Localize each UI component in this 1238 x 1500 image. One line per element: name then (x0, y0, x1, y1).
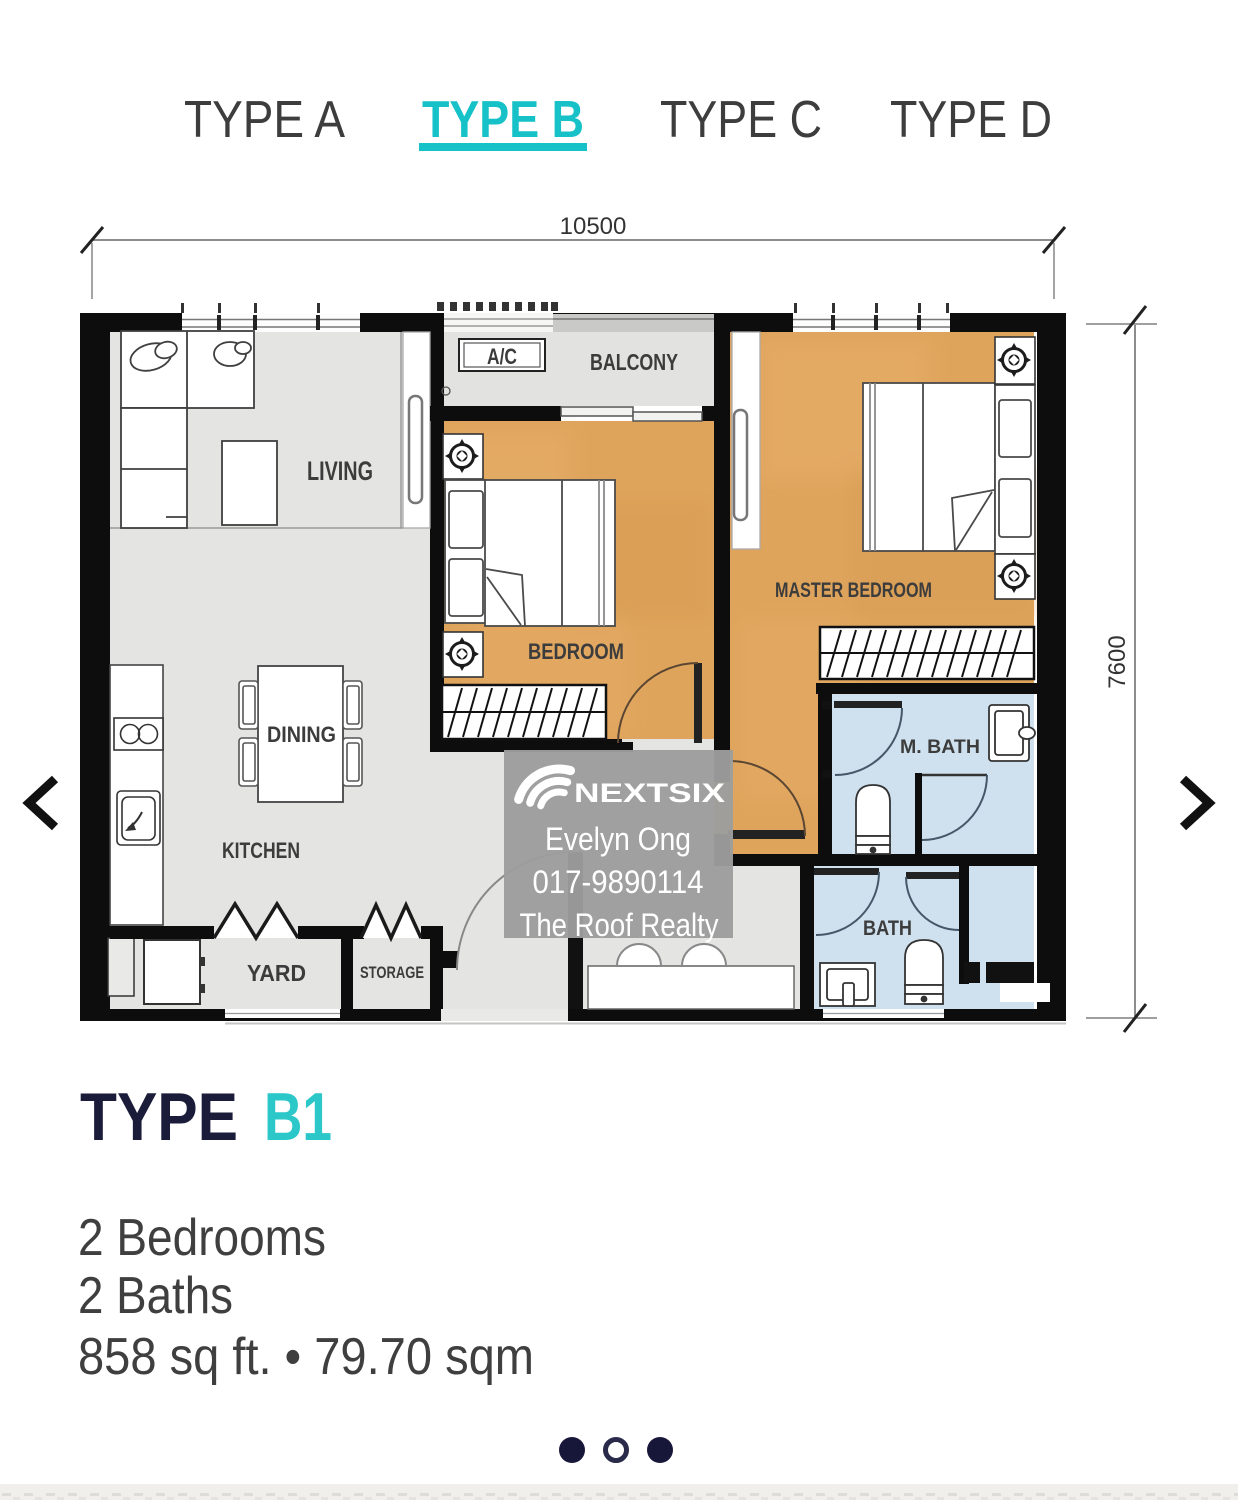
svg-text:LIVING: LIVING (307, 456, 373, 486)
svg-text:TYPE B: TYPE B (422, 91, 584, 149)
svg-text:KITCHEN: KITCHEN (222, 838, 300, 863)
svg-text:B1: B1 (264, 1079, 332, 1155)
svg-text:TYPE D: TYPE D (890, 91, 1052, 149)
svg-text:M. BATH: M. BATH (900, 737, 980, 758)
svg-text:TYPE A: TYPE A (184, 91, 345, 149)
svg-text:MASTER BEDROOM: MASTER BEDROOM (775, 579, 932, 602)
svg-text:Evelyn Ong: Evelyn Ong (545, 821, 691, 857)
svg-text:BATH: BATH (863, 917, 912, 940)
svg-text:DINING: DINING (267, 722, 336, 747)
svg-text:STORAGE: STORAGE (360, 963, 424, 982)
svg-text:858 sq ft. • 79.70 sqm: 858 sq ft. • 79.70 sqm (78, 1328, 534, 1386)
svg-text:017-9890114: 017-9890114 (533, 864, 704, 900)
svg-text:The Roof Realty: The Roof Realty (520, 907, 719, 943)
svg-text:A/C: A/C (487, 344, 517, 369)
svg-text:BEDROOM: BEDROOM (528, 639, 624, 664)
svg-text:10500: 10500 (560, 213, 627, 240)
svg-text:YARD: YARD (247, 960, 306, 986)
svg-text:7600: 7600 (1104, 635, 1131, 688)
svg-text:TYPE C: TYPE C (660, 91, 822, 149)
svg-text:2 Baths: 2 Baths (78, 1267, 233, 1325)
svg-text:2 Bedrooms: 2 Bedrooms (78, 1209, 326, 1267)
svg-text:BALCONY: BALCONY (590, 349, 678, 375)
svg-text:NEXTSIX: NEXTSIX (574, 778, 725, 808)
svg-text:TYPE: TYPE (80, 1079, 238, 1155)
